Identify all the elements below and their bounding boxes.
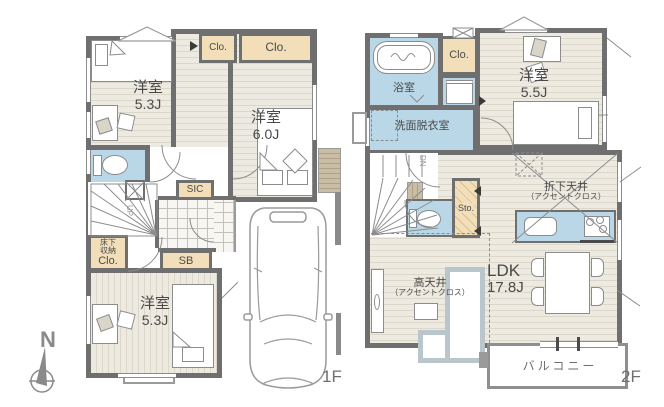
bay-window-triangle-1f (118, 27, 176, 41)
high-ceiling-label: 高天井 （アクセントクロス） (378, 277, 482, 298)
bathroom-label: 浴室 (372, 82, 436, 94)
floor2-label: 2F (621, 367, 661, 386)
washroom-label: 洗面脱衣室 (367, 120, 477, 132)
room-size: 6.0J (236, 127, 296, 143)
room-name: 洋室 (116, 80, 180, 97)
floor1-linework (80, 14, 350, 394)
room-label-1f-bedroom-side: 洋室 6.0J (236, 110, 296, 142)
cushion-diamond-1f (283, 149, 307, 173)
door-pivot-mark-sto-a (474, 186, 481, 196)
room-name: 洋室 (123, 296, 187, 313)
room-label-1f-bedroom-top: 洋室 5.3J (116, 80, 180, 112)
room-name: 洋室 (505, 68, 563, 85)
lowered-ceiling-label: 折下天井 （アクセントクロス） (514, 181, 618, 202)
blanket-flap-1f-top (110, 41, 125, 55)
door-pivot-mark-clo2f (479, 96, 486, 106)
room-size: 5.3J (116, 97, 180, 113)
floor-plan-canvas: Clo. Clo. SIC SB 床下収納 Clo. (0, 0, 664, 407)
compass-icon (20, 345, 64, 393)
balcony-label: バルコニー (510, 360, 610, 373)
room-size: 5.5J (505, 85, 563, 101)
room-name: 洋室 (236, 110, 296, 127)
ldk-name: LDK (487, 261, 547, 280)
stairs-dn-label: DN (417, 155, 426, 167)
bay-window-triangle-2f (500, 17, 548, 30)
room-label-2f-bedroom: 洋室 5.5J (505, 68, 563, 100)
blanket-flap-1f-bottom (173, 332, 190, 347)
lowered-ceiling-line2: （アクセントクロス） (514, 193, 618, 202)
stairs-up-label: UP (124, 205, 133, 216)
room-label-1f-bedroom-bottom: 洋室 5.3J (123, 296, 187, 328)
ldk-label: LDK 17.8J (487, 261, 547, 297)
door-pivot-mark-1f (190, 41, 198, 51)
high-ceiling-line2: （アクセントクロス） (378, 289, 482, 298)
room-size: 5.3J (123, 313, 187, 329)
ldk-size: 17.8J (487, 280, 547, 297)
pillow-2f (578, 107, 592, 139)
blanket-flap-1f-side (260, 153, 277, 170)
door-pivot-mark-sto-b (474, 226, 481, 236)
